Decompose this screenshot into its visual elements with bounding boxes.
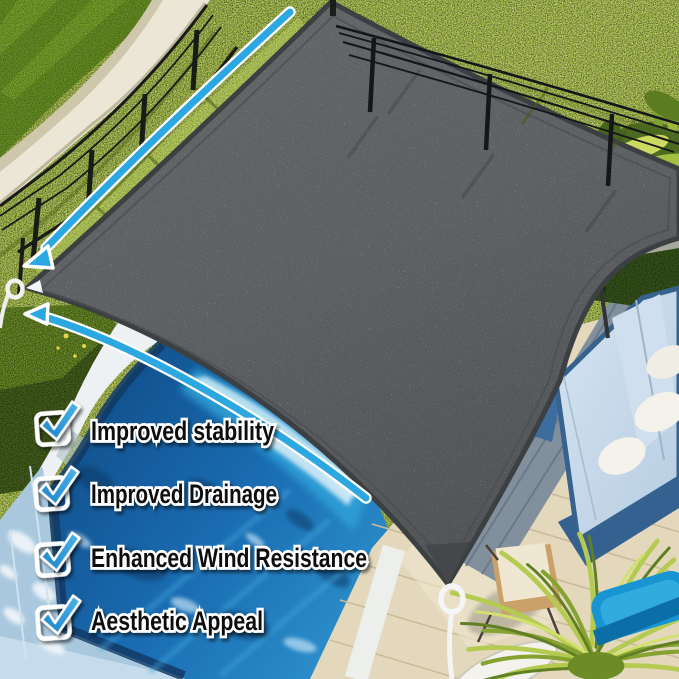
- svg-text:Aesthetic Appeal: Aesthetic Appeal: [91, 606, 263, 636]
- svg-text:Improved Drainage: Improved Drainage: [91, 479, 277, 509]
- svg-text:Improved stability: Improved stability: [91, 416, 274, 446]
- svg-text:Enhanced Wind Resistance: Enhanced Wind Resistance: [91, 543, 367, 573]
